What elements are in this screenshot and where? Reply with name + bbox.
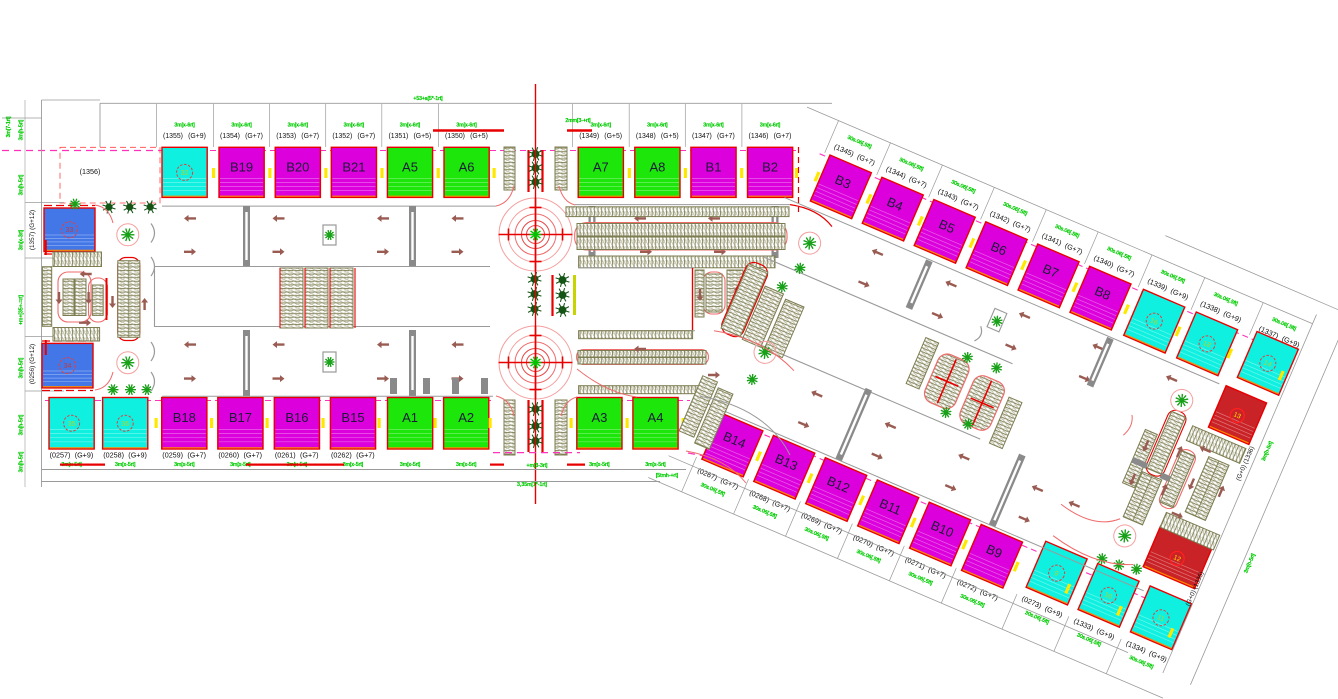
- svg-text:3m[x-5rt]: 3m[x-5rt]: [115, 462, 136, 468]
- svg-text:B16: B16: [285, 410, 308, 425]
- svg-text:(0256) (G+12): (0256) (G+12): [29, 344, 36, 384]
- svg-text:3m[h-5rt]: 3m[h-5rt]: [19, 119, 25, 140]
- svg-text:33: 33: [66, 227, 74, 234]
- svg-text:A7: A7: [593, 159, 609, 174]
- svg-text:(G+7): (G+7): [357, 133, 375, 140]
- svg-text:3m[x-5rt]: 3m[x-5rt]: [456, 462, 477, 468]
- svg-text:(1349): (1349): [579, 133, 599, 140]
- svg-text:(1347): (1347): [692, 133, 712, 140]
- svg-text:(G+5): (G+5): [661, 133, 679, 140]
- svg-text:(1351): (1351): [388, 133, 408, 140]
- svg-text:+53+a[5*-1rt]: +53+a[5*-1rt]: [413, 96, 443, 102]
- svg-text:3m[x-6rt]: 3m[x-6rt]: [760, 123, 781, 129]
- svg-text:(1348): (1348): [636, 133, 656, 140]
- svg-text:B20: B20: [286, 159, 309, 174]
- svg-text:(G+7): (G+7): [301, 133, 319, 140]
- svg-text:(0259): (0259): [162, 451, 183, 460]
- svg-text:3m[x-6rt]: 3m[x-6rt]: [456, 123, 477, 129]
- svg-text:[5tmh-+rt]: [5tmh-+rt]: [656, 473, 679, 479]
- svg-text:3m[h-5rt]: 3m[h-5rt]: [19, 357, 25, 378]
- svg-text:3,35m[1*-1rt]: 3,35m[1*-1rt]: [517, 482, 548, 488]
- svg-text:(G+7): (G+7): [187, 451, 206, 460]
- svg-text:3m[h-5rt]: 3m[h-5rt]: [19, 174, 25, 195]
- svg-text:+m+[35+-=rt]: +m+[35+-=rt]: [19, 294, 25, 325]
- svg-text:B2: B2: [762, 159, 778, 174]
- svg-text:B17: B17: [229, 410, 252, 425]
- svg-text:(1350): (1350): [445, 133, 465, 140]
- svg-text:34: 34: [64, 363, 72, 370]
- svg-text:(G+9): (G+9): [75, 451, 94, 460]
- svg-text:(G+9): (G+9): [188, 133, 206, 140]
- svg-text:3m[x-6rt]: 3m[x-6rt]: [591, 123, 612, 129]
- svg-text:36: 36: [121, 421, 129, 428]
- svg-text:32: 32: [181, 170, 189, 177]
- svg-text:(1357) (G+12): (1357) (G+12): [29, 210, 36, 250]
- svg-text:3m[h-5rt]: 3m[h-5rt]: [19, 451, 25, 472]
- svg-text:(1356): (1356): [80, 167, 101, 176]
- svg-text:A1: A1: [402, 410, 418, 425]
- svg-text:B18: B18: [173, 410, 196, 425]
- svg-text:(1346): (1346): [749, 133, 769, 140]
- svg-text:(G+5): (G+5): [604, 133, 622, 140]
- svg-text:A3: A3: [591, 410, 607, 425]
- svg-text:3m[x-3rt]: 3m[x-3rt]: [19, 229, 25, 250]
- svg-text:3m[x-5rt]: 3m[x-5rt]: [589, 462, 610, 468]
- svg-text:(1353): (1353): [276, 133, 296, 140]
- svg-text:3m[x-6rt]: 3m[x-6rt]: [288, 123, 309, 129]
- svg-text:3m[x-5rt]: 3m[x-5rt]: [343, 462, 364, 468]
- svg-text:A4: A4: [648, 410, 664, 425]
- svg-text:B15: B15: [341, 410, 364, 425]
- svg-text:A2: A2: [458, 410, 474, 425]
- svg-text:(G+7): (G+7): [244, 451, 263, 460]
- svg-text:3m[x-6rt]: 3m[x-6rt]: [174, 123, 195, 129]
- svg-text:(0257): (0257): [50, 451, 71, 460]
- svg-text:+m[3-3rt]: +m[3-3rt]: [527, 463, 548, 469]
- svg-text:A6: A6: [459, 159, 475, 174]
- svg-text:3m[7-1rt]: 3m[7-1rt]: [6, 116, 12, 137]
- svg-text:(1352): (1352): [332, 133, 352, 140]
- svg-text:3m[x-6rt]: 3m[x-6rt]: [231, 123, 252, 129]
- svg-text:3m[x-6rt]: 3m[x-6rt]: [400, 123, 421, 129]
- svg-text:3m[x-6rt]: 3m[x-6rt]: [344, 123, 365, 129]
- svg-text:(G+7): (G+7): [300, 451, 319, 460]
- svg-text:A5: A5: [402, 159, 418, 174]
- svg-text:(G+7): (G+7): [717, 133, 735, 140]
- svg-text:3m[x-5rt]: 3m[x-5rt]: [174, 462, 195, 468]
- svg-text:B21: B21: [342, 159, 365, 174]
- svg-text:A8: A8: [649, 159, 665, 174]
- svg-text:35: 35: [68, 421, 76, 428]
- svg-text:(0260): (0260): [218, 451, 239, 460]
- svg-text:(G+5): (G+5): [470, 133, 488, 140]
- svg-text:(G+5): (G+5): [413, 133, 431, 140]
- svg-text:3m[x-5rt]: 3m[x-5rt]: [645, 462, 666, 468]
- svg-text:(G+7): (G+7): [774, 133, 792, 140]
- svg-text:(G+7): (G+7): [245, 133, 263, 140]
- svg-text:(G+7): (G+7): [356, 451, 375, 460]
- svg-text:(0261): (0261): [275, 451, 296, 460]
- svg-text:B19: B19: [230, 159, 253, 174]
- svg-text:2mm[3-+rt]: 2mm[3-+rt]: [565, 118, 591, 124]
- svg-text:3m[x-6rt]: 3m[x-6rt]: [703, 123, 724, 129]
- svg-text:(1354): (1354): [220, 133, 240, 140]
- svg-text:(1355): (1355): [163, 133, 183, 140]
- svg-text:3m[x-5rt]: 3m[x-5rt]: [400, 462, 421, 468]
- svg-text:3m[h-5rt]: 3m[h-5rt]: [19, 414, 25, 435]
- svg-text:B1: B1: [706, 159, 722, 174]
- svg-text:3m[x-6rt]: 3m[x-6rt]: [647, 123, 668, 129]
- svg-text:(0262): (0262): [331, 451, 352, 460]
- svg-text:(0258): (0258): [103, 451, 124, 460]
- svg-text:(G+9): (G+9): [128, 451, 147, 460]
